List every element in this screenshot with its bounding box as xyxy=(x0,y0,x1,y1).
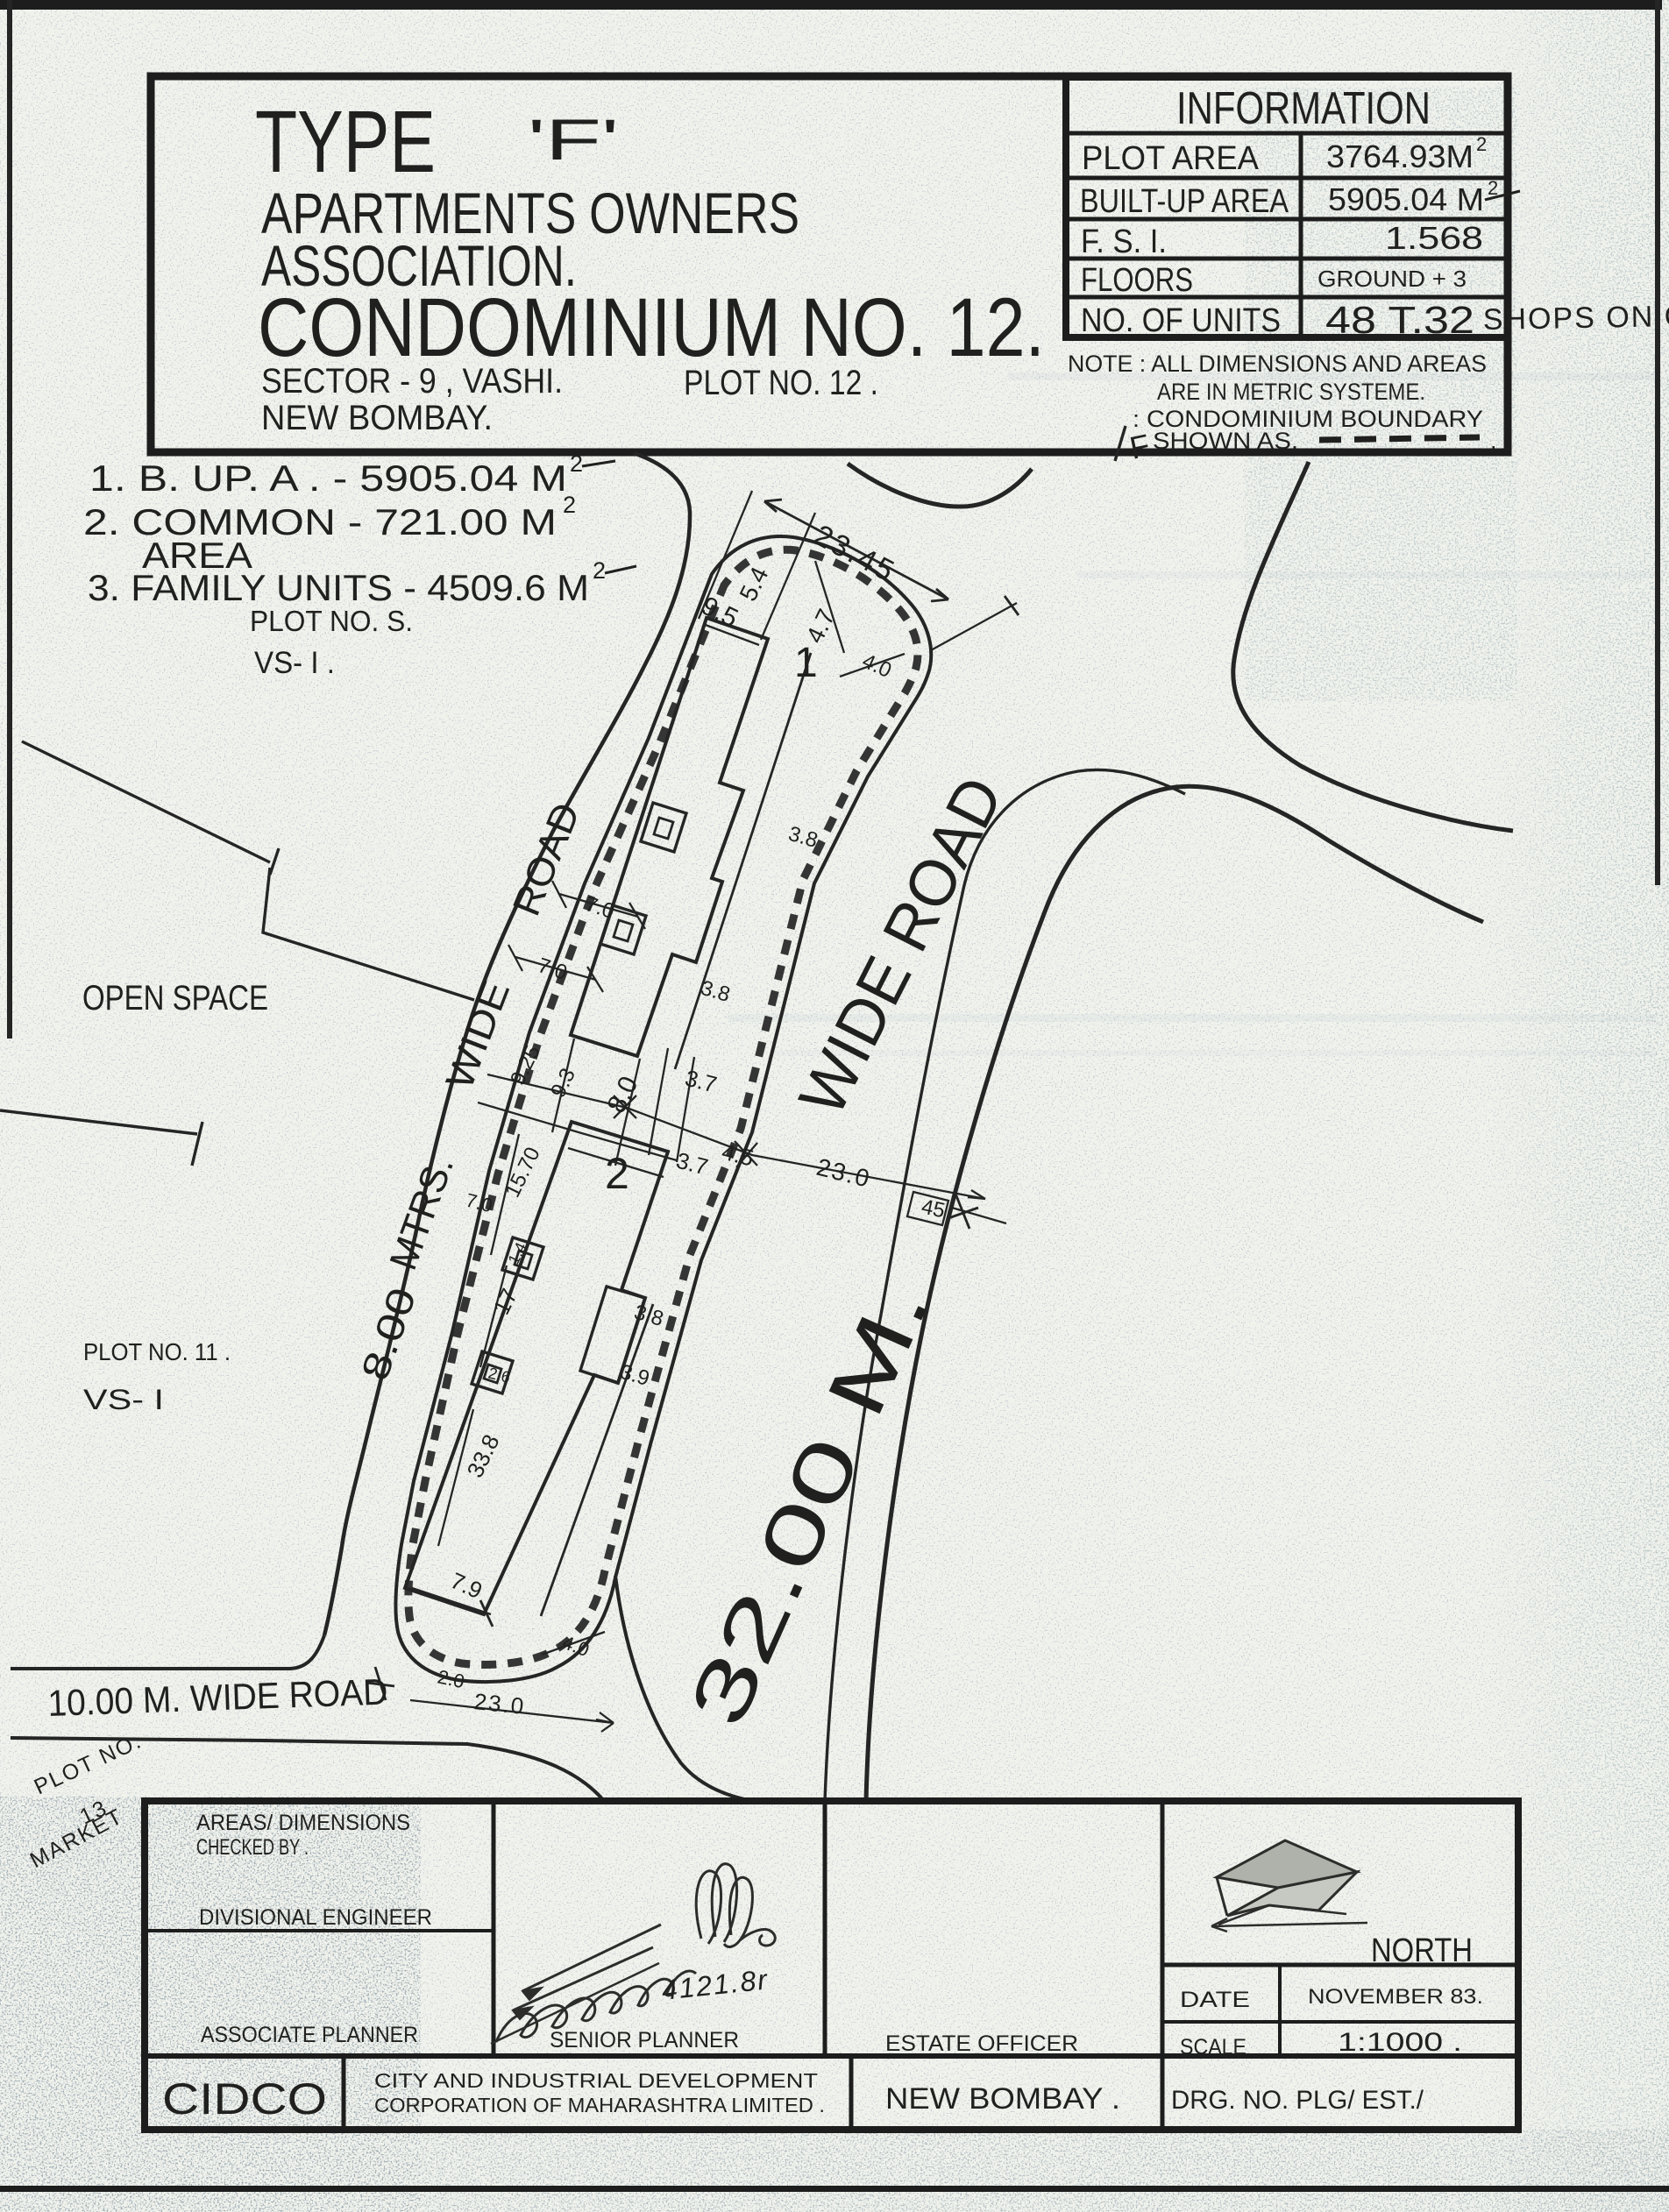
svg-text:'F': 'F' xyxy=(528,107,619,172)
svg-text:1: 1 xyxy=(794,640,818,686)
svg-text:SENIOR PLANNER: SENIOR PLANNER xyxy=(550,2028,739,2052)
svg-text:DIVISIONAL ENGINEER: DIVISIONAL ENGINEER xyxy=(199,1905,432,1930)
svg-text:SECTOR - 9 , VASHI.: SECTOR - 9 , VASHI. xyxy=(261,362,563,401)
svg-text:SHOWN AS.: SHOWN AS. xyxy=(1153,428,1298,454)
svg-text:3. FAMILY UNITS - 4509.6 M: 3. FAMILY UNITS - 4509.6 M xyxy=(88,567,589,608)
svg-text:NEW BOMBAY.: NEW BOMBAY. xyxy=(261,399,493,437)
svg-text:2: 2 xyxy=(563,492,576,518)
svg-text:ASSOCIATE PLANNER: ASSOCIATE PLANNER xyxy=(201,2023,418,2047)
svg-text:2: 2 xyxy=(1476,133,1487,155)
svg-text:F. S. I.: F. S. I. xyxy=(1081,223,1167,260)
svg-text:DRG. NO. PLG/ EST./: DRG. NO. PLG/ EST./ xyxy=(1171,2086,1424,2115)
svg-text:3764.93M: 3764.93M xyxy=(1326,138,1474,174)
svg-text:TYPE: TYPE xyxy=(255,93,436,191)
svg-text:45: 45 xyxy=(920,1195,948,1223)
svg-text:ESTATE OFFICER: ESTATE OFFICER xyxy=(885,2031,1078,2056)
svg-text:PLOT NO. 11 .: PLOT NO. 11 . xyxy=(83,1338,231,1365)
svg-text:DATE: DATE xyxy=(1180,1988,1250,2012)
svg-text:1. B. UP. A . - 5905.04 M: 1. B. UP. A . - 5905.04 M xyxy=(89,457,567,499)
svg-text:AREAS/ DIMENSIONS: AREAS/ DIMENSIONS xyxy=(196,1811,410,1835)
svg-text:FLOORS: FLOORS xyxy=(1081,262,1193,299)
svg-text:48 T.32: 48 T.32 xyxy=(1325,299,1474,342)
svg-text:2: 2 xyxy=(593,557,606,584)
svg-text:VS- I .: VS- I . xyxy=(254,646,335,680)
svg-text:NO. OF UNITS: NO. OF UNITS xyxy=(1081,302,1281,339)
svg-text:1.568: 1.568 xyxy=(1385,220,1483,256)
svg-text:CHECKED BY .: CHECKED BY . xyxy=(196,1835,309,1860)
svg-text:CITY AND INDUSTRIAL DEVELO: CITY AND INDUSTRIAL DEVELOPMENT xyxy=(374,2069,818,2092)
svg-text:CORPORATION OF MAHARASHTRA LIM: CORPORATION OF MAHARASHTRA LIMITED . xyxy=(374,2094,825,2116)
svg-text:2: 2 xyxy=(570,450,583,477)
svg-text:.: . xyxy=(1490,428,1497,454)
svg-text:PLOT NO. S.: PLOT NO. S. xyxy=(250,605,413,637)
svg-text:SHOPS ON G: SHOPS ON G xyxy=(1482,300,1669,337)
svg-text:CONDOMINIUM NO. 12.: CONDOMINIUM NO. 12. xyxy=(258,281,1045,374)
svg-text:INFORMATION: INFORMATION xyxy=(1176,83,1431,134)
svg-text:23.0: 23.0 xyxy=(472,1688,526,1719)
svg-text:2: 2 xyxy=(605,1149,629,1198)
svg-text:BUILT-UP AREA: BUILT-UP AREA xyxy=(1080,183,1289,220)
svg-text:NOVEMBER 83.: NOVEMBER 83. xyxy=(1308,1985,1483,2009)
svg-text:NOTE : ALL DIMENSIONS AND: NOTE : ALL DIMENSIONS AND AREAS xyxy=(1068,351,1487,377)
svg-text:GROUND + 3: GROUND + 3 xyxy=(1317,266,1467,292)
svg-text:VS- I: VS- I xyxy=(83,1384,164,1415)
svg-text:PLOT AREA: PLOT AREA xyxy=(1082,140,1260,177)
svg-text:SCALE: SCALE xyxy=(1180,2035,1246,2060)
svg-text:NORTH: NORTH xyxy=(1371,1932,1473,1969)
svg-text:ARE IN METRIC SYSTEME.: ARE IN METRIC SYSTEME. xyxy=(1157,379,1425,405)
svg-text:CIDCO: CIDCO xyxy=(162,2074,327,2123)
svg-text:OPEN SPACE: OPEN SPACE xyxy=(82,979,268,1017)
svg-text:NEW BOMBAY .: NEW BOMBAY . xyxy=(885,2082,1120,2116)
svg-text:1:1000 .: 1:1000 . xyxy=(1338,2028,1462,2057)
svg-text:PLOT NO. 12 .: PLOT NO. 12 . xyxy=(684,364,878,402)
svg-text:5905.04 M: 5905.04 M xyxy=(1328,181,1484,217)
